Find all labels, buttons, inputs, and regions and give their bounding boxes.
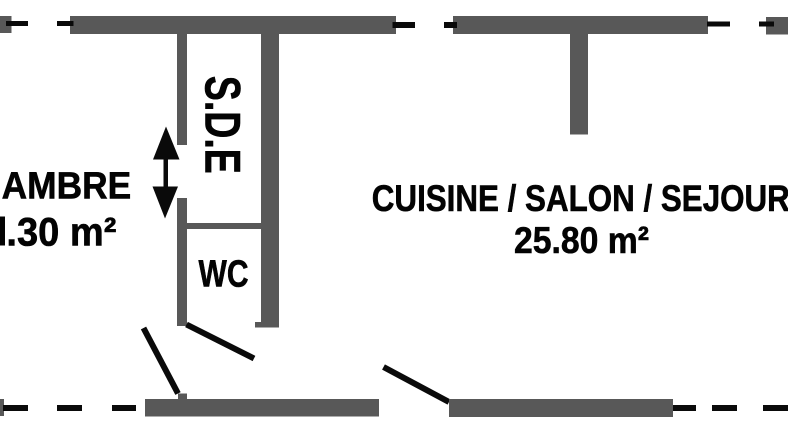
svg-text:WC: WC — [199, 254, 249, 296]
svg-text:CHAMBRE: CHAMBRE — [0, 165, 131, 207]
svg-text:S.D.E: S.D.E — [195, 76, 251, 174]
svg-text:25.80 m²: 25.80 m² — [514, 219, 649, 261]
svg-text:CUISINE / SALON / SEJOUR: CUISINE / SALON / SEJOUR — [372, 177, 788, 219]
svg-text:.30 m²: .30 m² — [6, 210, 116, 254]
